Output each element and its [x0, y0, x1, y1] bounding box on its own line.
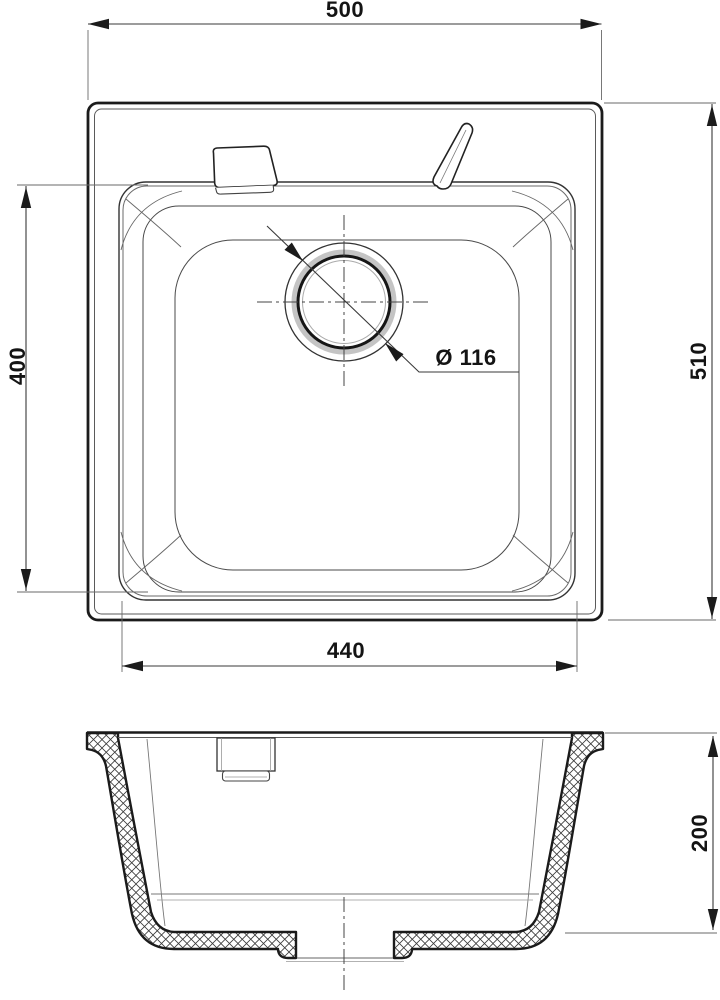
dimension-500: 500 [88, 0, 602, 100]
drawing-page: Ø 116 500 510 400 [0, 0, 720, 1000]
dimension-510: 510 [604, 103, 717, 620]
section-far-wall-lines [147, 739, 543, 926]
height-400-label: 400 [5, 347, 30, 385]
section-wall-right [394, 733, 603, 958]
sink-technical-drawing: Ø 116 500 510 400 [0, 0, 720, 1000]
height-510-label: 510 [686, 342, 711, 380]
drain-diameter-label: Ø 116 [435, 345, 496, 370]
depth-200-label: 200 [687, 814, 712, 852]
section-drain-opening [286, 958, 404, 962]
dimension-200: 200 [565, 733, 718, 933]
width-440-label: 440 [327, 638, 365, 663]
section-view: 200 [87, 733, 718, 991]
dispenser-plan [213, 146, 277, 194]
plan-view: Ø 116 500 510 400 [5, 0, 717, 672]
dispenser-section [217, 738, 275, 781]
width-500-label: 500 [326, 0, 364, 22]
